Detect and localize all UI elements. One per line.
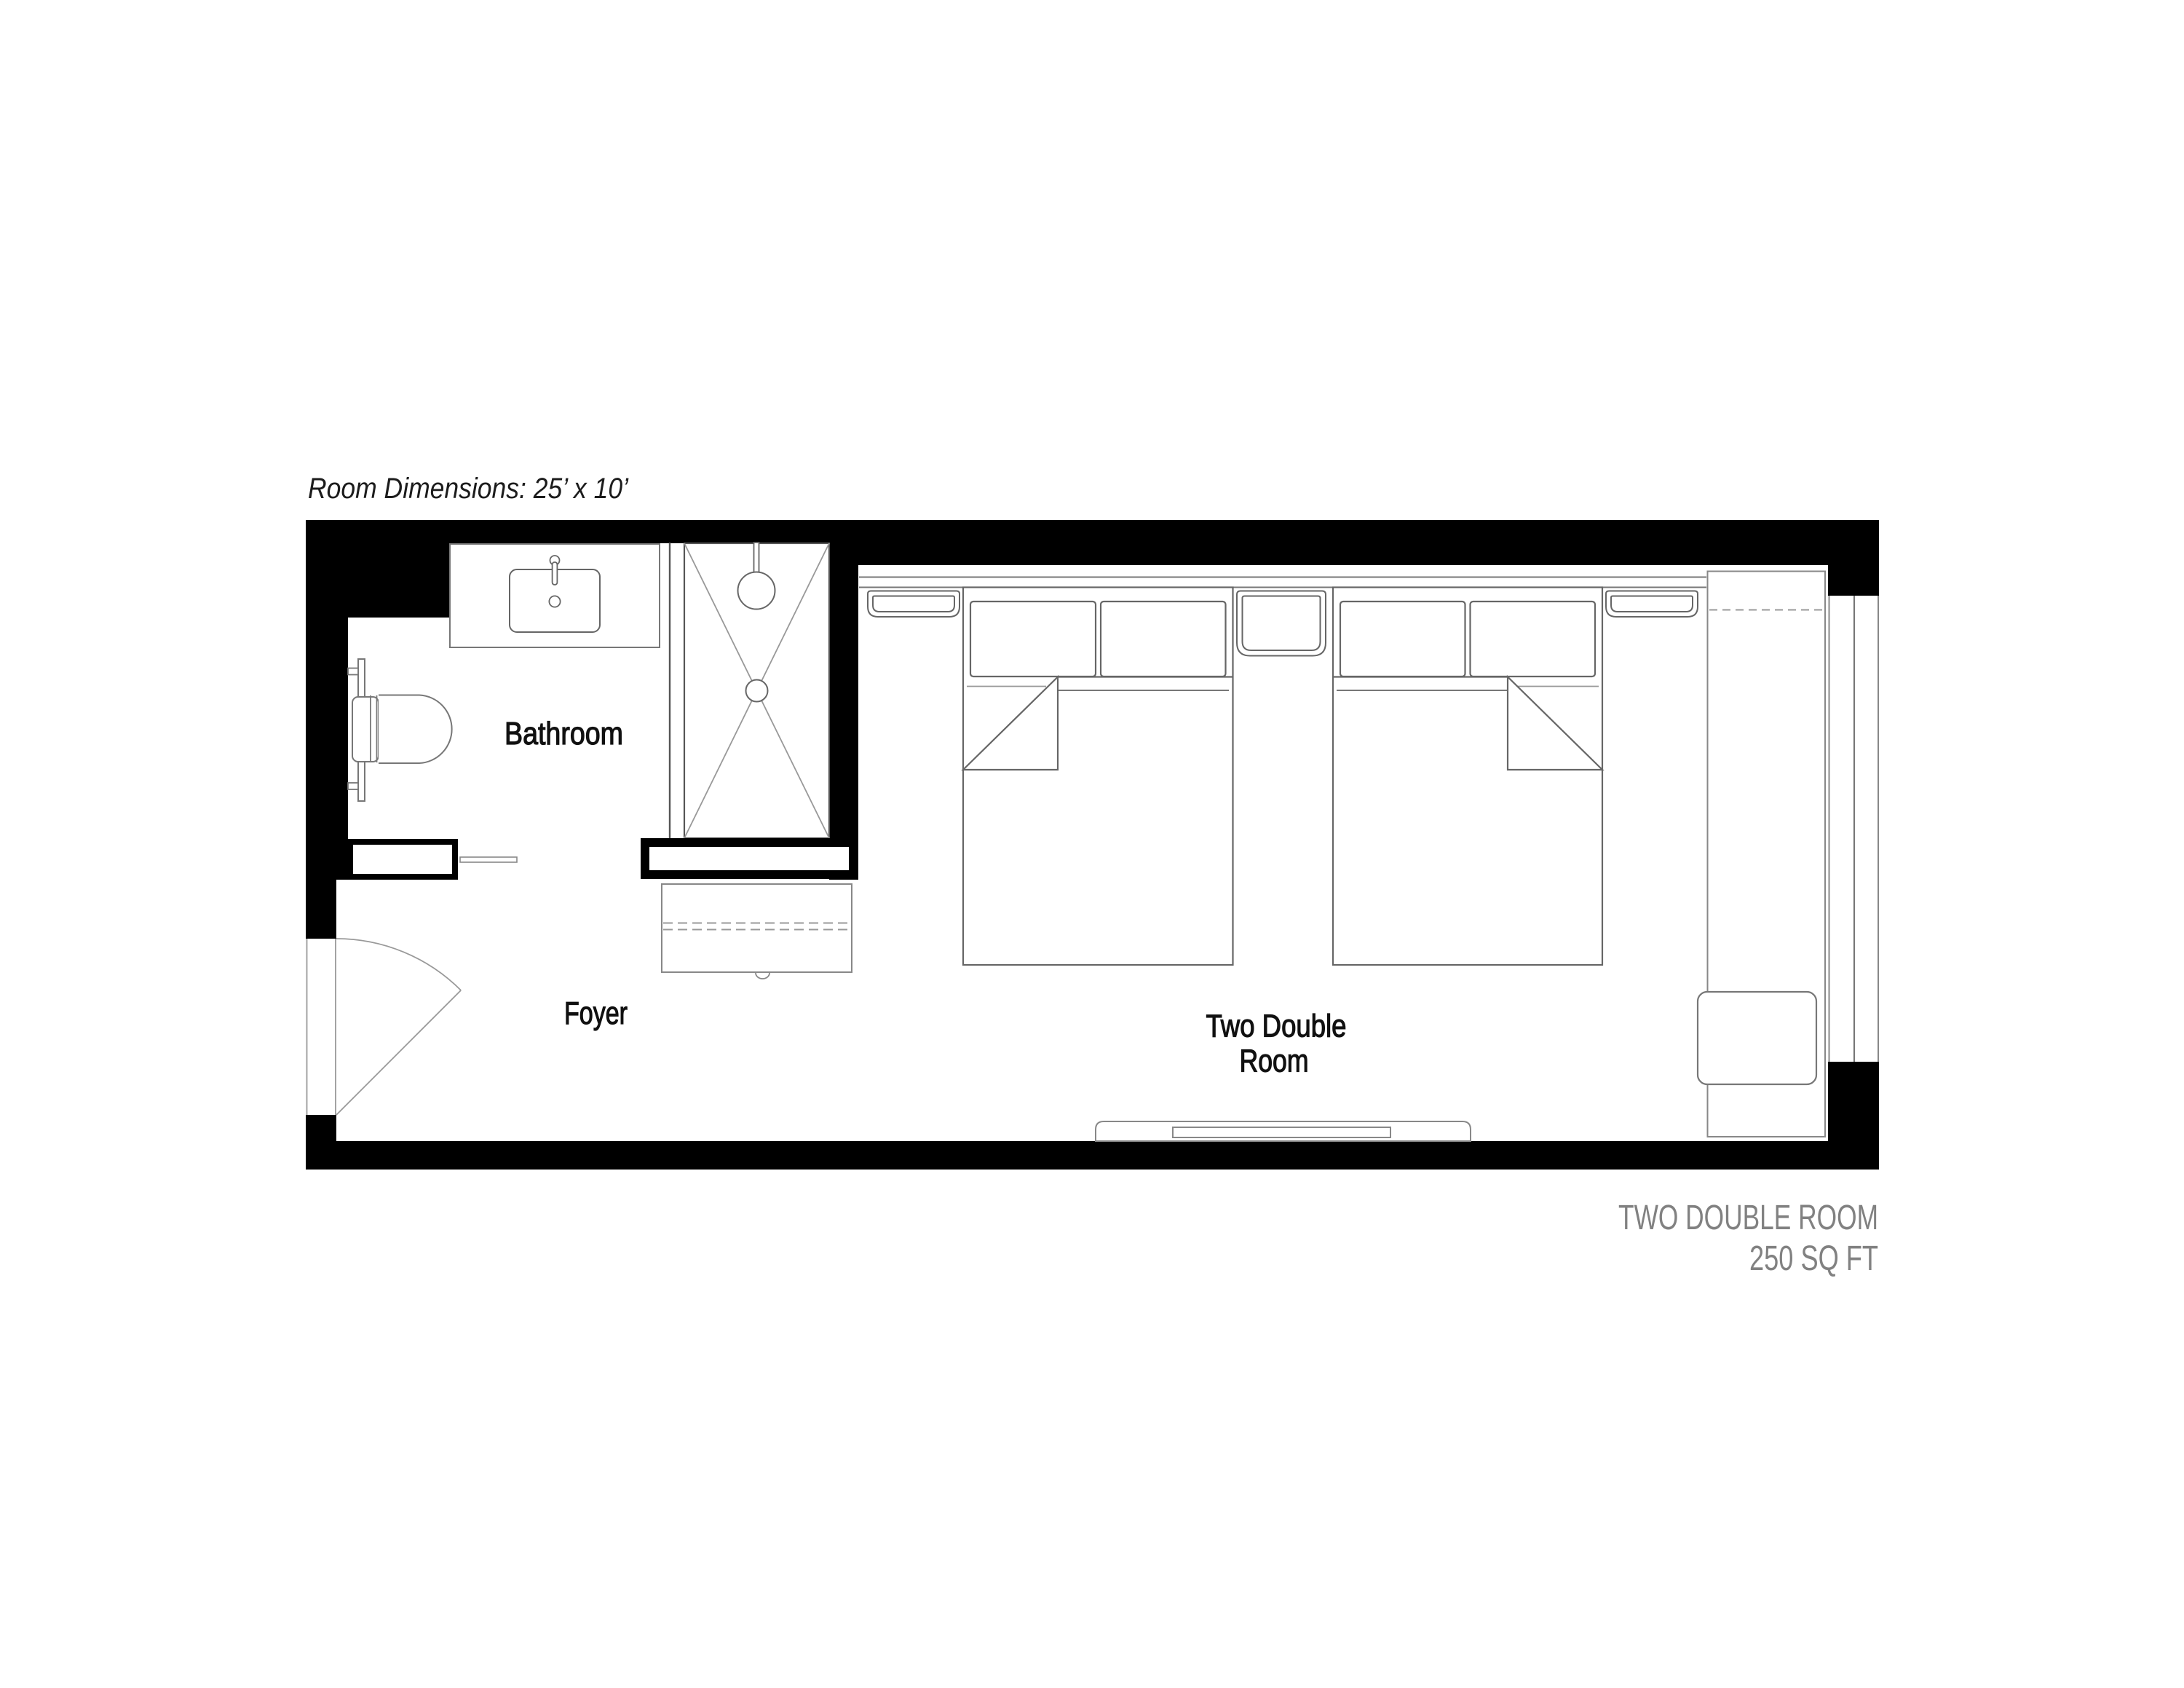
svg-text:TWO DOUBLE ROOM: TWO DOUBLE ROOM [1618,1199,1878,1237]
svg-text:Room Dimensions: 25’ x 10’: Room Dimensions: 25’ x 10’ [308,473,629,505]
svg-text:Two Double: Two Double [1206,1009,1347,1044]
svg-text:Bathroom: Bathroom [505,716,623,752]
svg-text:Foyer: Foyer [564,995,628,1031]
svg-text:250 SQ FT: 250 SQ FT [1749,1239,1878,1278]
svg-text:Room: Room [1240,1044,1309,1079]
